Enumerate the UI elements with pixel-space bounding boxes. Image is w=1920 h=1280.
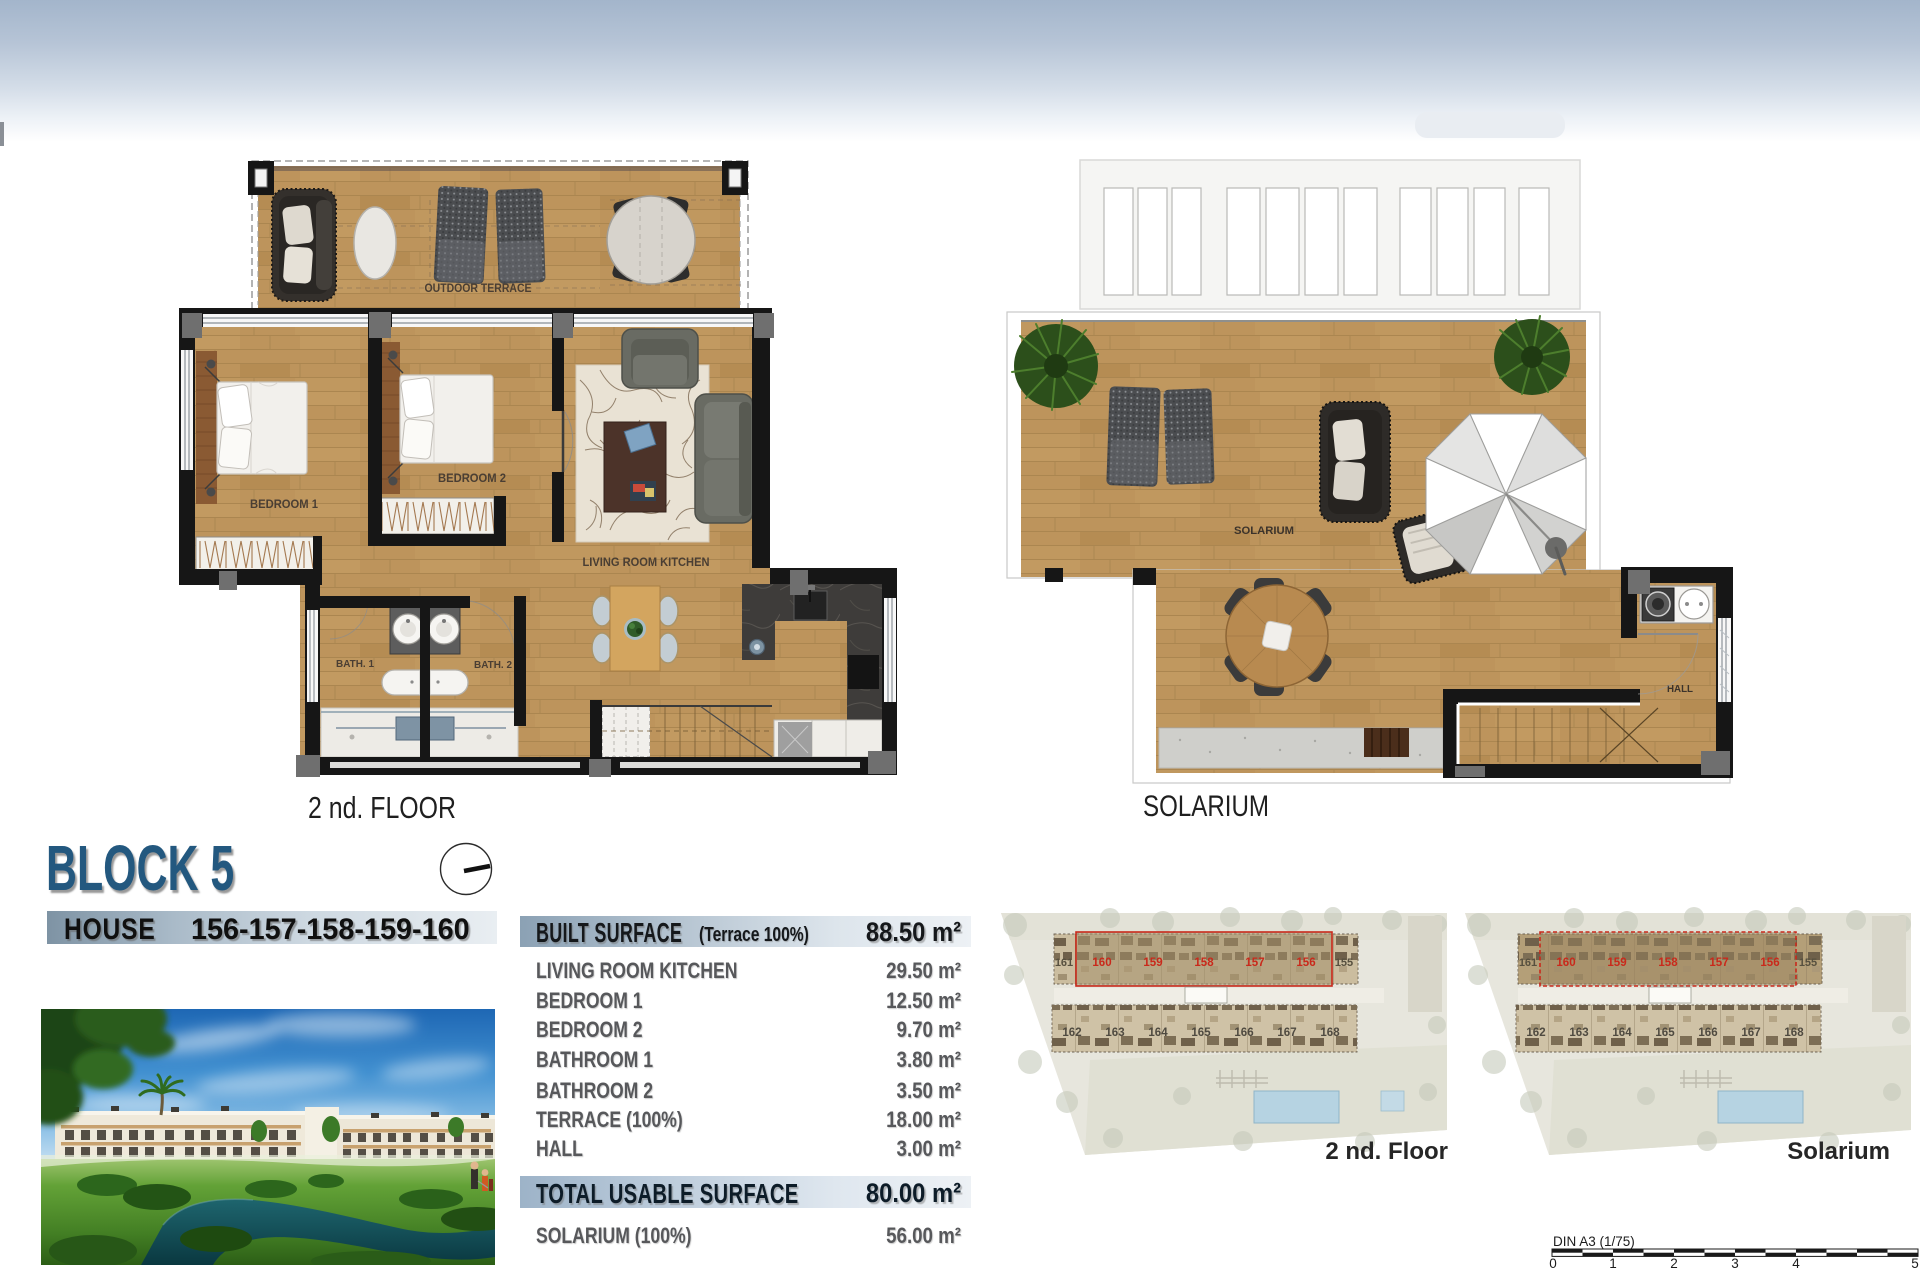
svg-text:165: 165 [1655,1027,1675,1039]
svg-text:162: 162 [1062,1027,1081,1039]
svg-text:160: 160 [1092,957,1111,969]
svg-text:163: 163 [1105,1027,1124,1039]
svg-text:167: 167 [1277,1027,1296,1039]
svg-text:162: 162 [1526,1027,1545,1039]
svg-text:3: 3 [1731,1256,1739,1271]
svg-text:167: 167 [1741,1027,1760,1039]
svg-text:161: 161 [1055,957,1073,969]
svg-text:160: 160 [1556,957,1575,969]
svg-text:168: 168 [1320,1027,1340,1039]
svg-text:156: 156 [1296,957,1315,969]
svg-text:157: 157 [1245,957,1264,969]
svg-text:0: 0 [1549,1256,1557,1271]
svg-text:164: 164 [1612,1027,1632,1039]
svg-text:158: 158 [1194,957,1214,969]
svg-text:5: 5 [1911,1256,1919,1271]
svg-text:165: 165 [1191,1027,1211,1039]
svg-text:161: 161 [1519,957,1537,969]
svg-text:155: 155 [1799,957,1817,969]
svg-text:166: 166 [1698,1027,1717,1039]
svg-text:157: 157 [1709,957,1728,969]
svg-text:164: 164 [1148,1027,1168,1039]
svg-text:1: 1 [1609,1256,1617,1271]
svg-text:166: 166 [1234,1027,1253,1039]
svg-text:156: 156 [1760,957,1779,969]
svg-text:159: 159 [1143,957,1162,969]
svg-text:DIN A3 (1/75): DIN A3 (1/75) [1553,1234,1635,1249]
svg-text:2: 2 [1670,1256,1678,1271]
svg-text:4: 4 [1792,1256,1800,1271]
svg-text:168: 168 [1784,1027,1804,1039]
svg-text:158: 158 [1658,957,1678,969]
svg-text:159: 159 [1607,957,1626,969]
svg-text:163: 163 [1569,1027,1588,1039]
svg-text:155: 155 [1335,957,1353,969]
